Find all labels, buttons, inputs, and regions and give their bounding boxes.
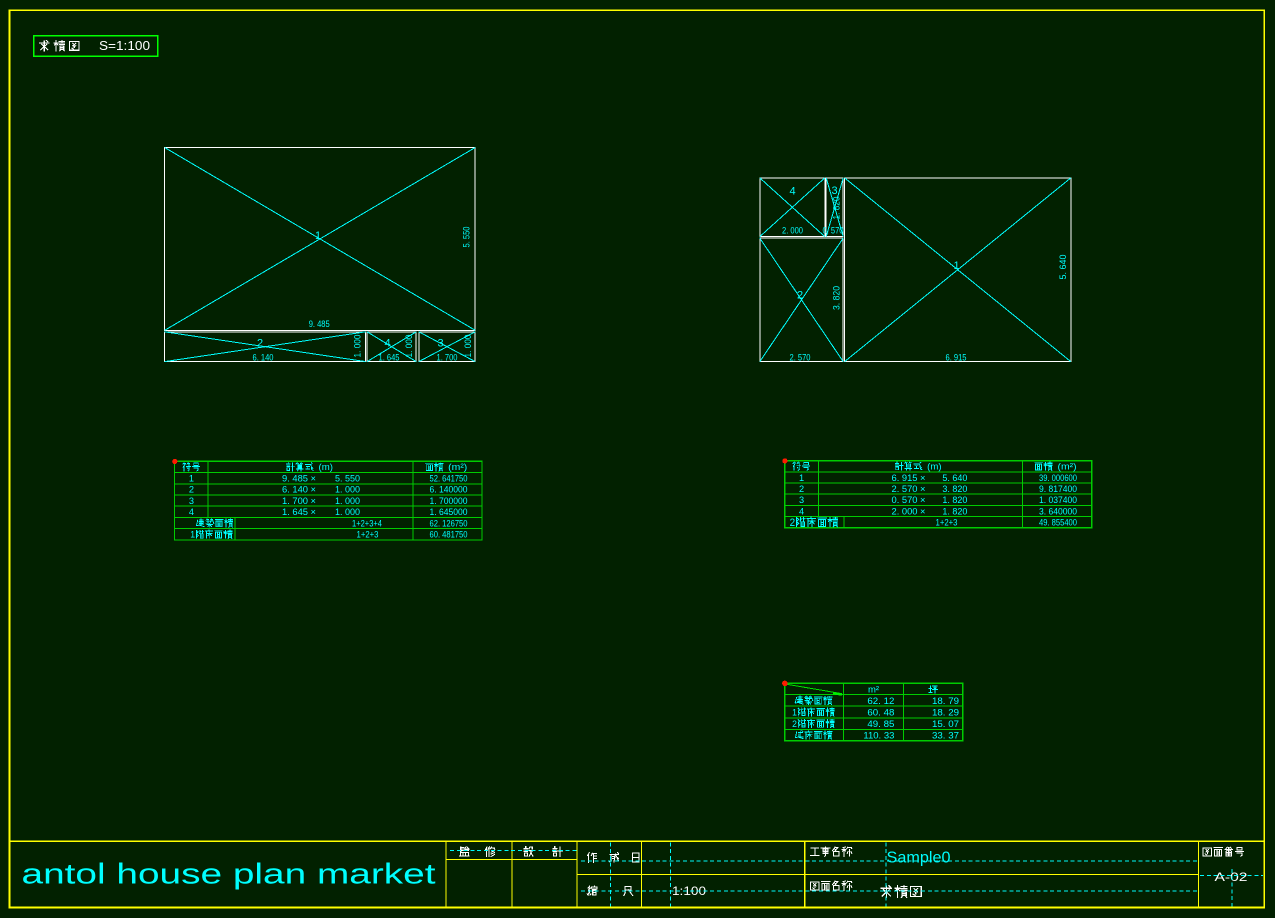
svg-text:4: 4 [189,507,194,517]
svg-text:5. 550: 5. 550 [335,473,360,483]
svg-text:39. 000600: 39. 000600 [1039,473,1077,483]
svg-text:5. 640: 5. 640 [1058,255,1069,280]
svg-text:1: 1 [792,707,797,717]
svg-text:1. 000: 1. 000 [352,335,363,358]
svg-text:1. 645000: 1. 645000 [430,507,468,517]
svg-text:1: 1 [953,260,959,272]
svg-text:3: 3 [799,495,804,505]
svg-text:1. 645: 1. 645 [379,353,400,364]
svg-text:0. 570 ×: 0. 570 × [892,495,926,505]
svg-text:3: 3 [189,496,194,506]
svg-text:1. 000: 1. 000 [463,335,474,358]
svg-text:6. 140 ×: 6. 140 × [282,485,316,495]
svg-text:(m²): (m²) [1058,462,1077,472]
svg-text:18. 79: 18. 79 [932,696,959,707]
svg-text:1+2+3+4: 1+2+3+4 [352,518,382,528]
svg-text:1. 000: 1. 000 [335,507,360,517]
svg-text:(m): (m) [319,462,333,472]
svg-text:(m): (m) [927,462,941,472]
svg-text:1. 820: 1. 820 [942,506,967,516]
svg-text:4: 4 [789,186,795,198]
svg-text:2: 2 [189,485,194,495]
svg-text:A-02: A-02 [1215,872,1248,884]
svg-text:antol house plan market: antol house plan market [22,859,436,891]
svg-text:6. 915: 6. 915 [946,353,967,364]
svg-text:5. 640: 5. 640 [942,473,967,483]
svg-text:S=1:100: S=1:100 [99,39,150,53]
svg-text:60. 48: 60. 48 [867,707,894,718]
svg-text:3. 640000: 3. 640000 [1039,506,1077,516]
svg-text:15. 07: 15. 07 [932,719,959,730]
svg-text:1. 820: 1. 820 [942,495,967,505]
svg-text:49. 85: 49. 85 [867,719,894,730]
svg-text:4: 4 [799,506,804,516]
svg-text:33. 37: 33. 37 [932,730,959,741]
svg-text:3: 3 [831,185,837,197]
svg-text:0. 570: 0. 570 [823,226,844,237]
svg-text:1. 037400: 1. 037400 [1039,495,1077,505]
svg-text:60. 481750: 60. 481750 [430,530,468,540]
svg-text:6. 140000: 6. 140000 [430,485,468,495]
svg-text:1. 000: 1. 000 [335,496,360,506]
svg-text:2. 000 ×: 2. 000 × [892,506,926,516]
svg-text:52. 641750: 52. 641750 [430,473,468,483]
svg-text:9. 485: 9. 485 [309,319,330,330]
svg-text:2. 570 ×: 2. 570 × [892,484,926,494]
svg-text:Sample0: Sample0 [887,850,951,867]
svg-text:5. 550: 5. 550 [462,227,473,248]
svg-text:62. 12: 62. 12 [867,696,894,707]
svg-text:49. 855400: 49. 855400 [1039,517,1077,527]
svg-text:1. 820: 1. 820 [831,197,842,220]
svg-text:2. 570: 2. 570 [790,353,811,364]
svg-text:9. 485 ×: 9. 485 × [282,473,316,483]
svg-text:3. 820: 3. 820 [942,484,967,494]
svg-text:1+2+3: 1+2+3 [357,530,379,540]
svg-text:(m²): (m²) [448,462,467,472]
svg-text:1. 700 ×: 1. 700 × [282,496,316,506]
svg-text:9. 817400: 9. 817400 [1039,484,1077,494]
svg-text:2: 2 [790,517,796,529]
svg-text:1+2+3: 1+2+3 [936,517,958,527]
svg-text:2: 2 [792,719,797,729]
svg-text:1: 1 [799,473,804,483]
svg-text:1. 000: 1. 000 [335,485,360,495]
svg-text:62. 126750: 62. 126750 [430,518,468,528]
svg-text:2. 000: 2. 000 [782,226,803,237]
svg-text:1: 1 [315,230,321,242]
svg-text:18. 29: 18. 29 [932,707,959,718]
svg-text:1. 000: 1. 000 [404,335,415,358]
svg-text:3: 3 [437,338,443,350]
svg-text:1. 645 ×: 1. 645 × [282,507,316,517]
svg-text:m²: m² [868,684,879,695]
svg-text:110. 33: 110. 33 [863,730,894,741]
svg-text:1: 1 [190,530,195,540]
svg-text:1. 700000: 1. 700000 [430,496,468,506]
svg-text:1: 1 [189,473,194,483]
svg-text:4: 4 [384,338,390,350]
svg-text:2: 2 [257,338,263,350]
svg-text:1. 700: 1. 700 [437,353,458,364]
svg-text:6. 915 ×: 6. 915 × [892,473,926,483]
svg-text:3. 820: 3. 820 [832,286,843,310]
svg-text:2: 2 [797,290,803,302]
svg-text:6. 140: 6. 140 [253,353,274,364]
svg-text:2: 2 [799,484,804,494]
